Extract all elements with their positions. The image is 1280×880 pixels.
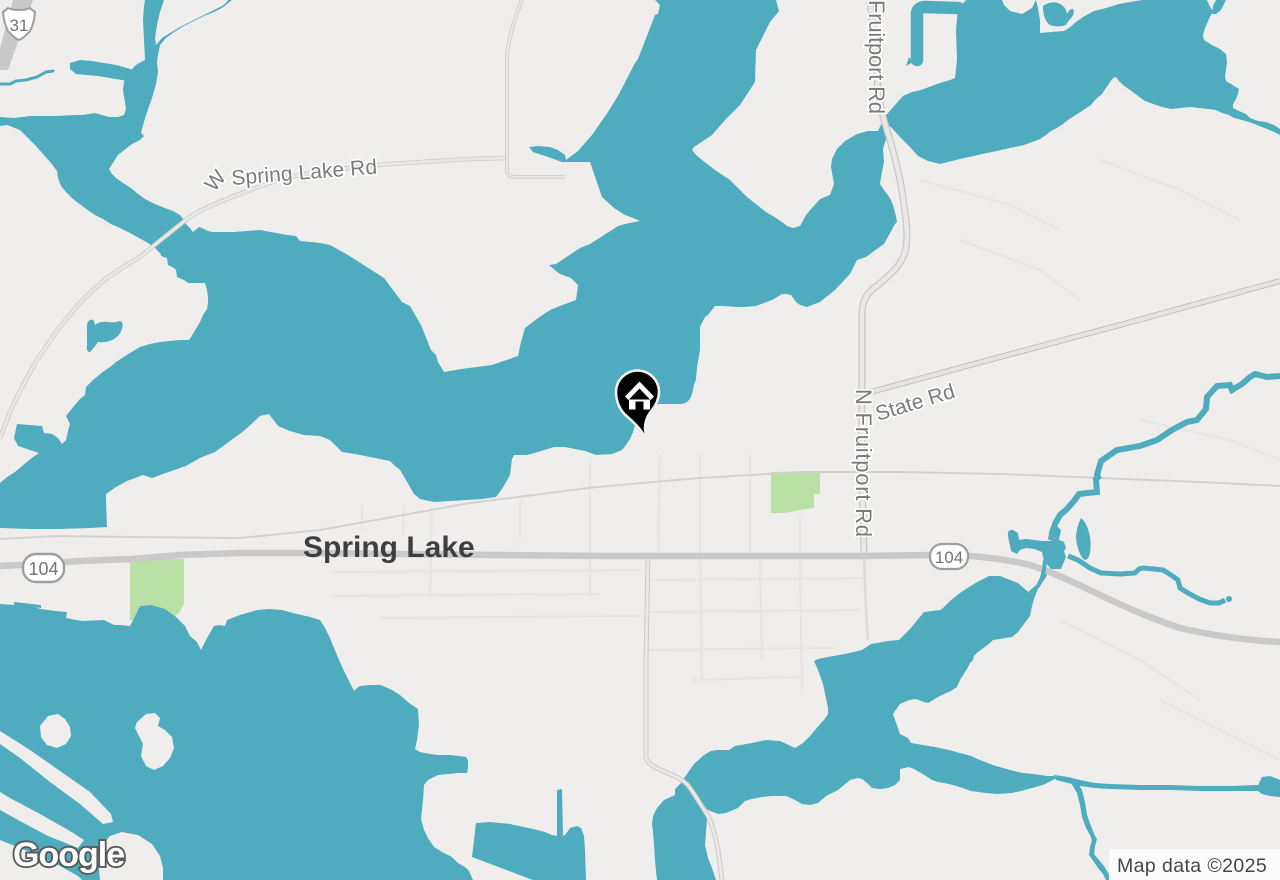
svg-text:31: 31 — [10, 16, 29, 35]
svg-text:Google: Google — [13, 836, 124, 874]
svg-text:104: 104 — [28, 559, 58, 579]
svg-text:N Fruitport Rd: N Fruitport Rd — [851, 389, 876, 537]
svg-text:Spring Lake: Spring Lake — [303, 531, 475, 564]
svg-text:Fruitport Rd: Fruitport Rd — [864, 0, 889, 114]
svg-text:104: 104 — [935, 548, 963, 567]
svg-text:Map data ©2025: Map data ©2025 — [1117, 855, 1267, 877]
